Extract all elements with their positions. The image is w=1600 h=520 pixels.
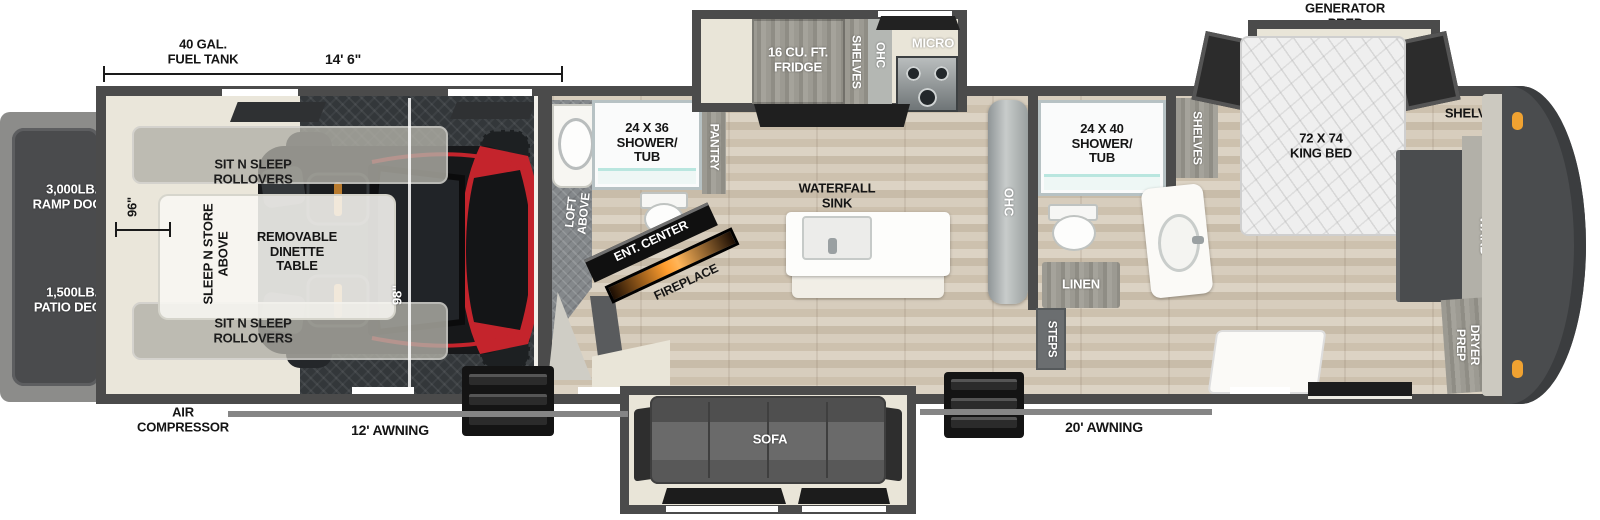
ramp-door-panel (12, 128, 100, 386)
marker-light-top (1512, 112, 1523, 130)
island-sink (802, 216, 872, 260)
garage-bath-wall (538, 96, 552, 394)
garage-entry-steps (462, 366, 554, 436)
rollovers-top-label: SIT N SLEEP ROLLOVERS (213, 157, 292, 186)
dimension-tick-left (103, 66, 105, 82)
dim-98-line (408, 98, 411, 392)
awning-20-bar (920, 409, 1212, 415)
pantry-label: PANTRY (707, 124, 720, 171)
air-compressor-label: AIR COMPRESSOR (137, 405, 229, 434)
wardrobe-cabinet (1396, 150, 1466, 302)
step-tread (951, 398, 1017, 409)
step-tread (951, 379, 1017, 390)
slide-window (802, 506, 886, 512)
island-faucet (828, 238, 837, 254)
dim-96-tick-right (169, 222, 171, 237)
awning-12-bar (228, 411, 628, 417)
marker-light-bottom (1512, 360, 1523, 378)
rv-floorplan: 40 GAL. FUEL TANK 14' 6" GENERATOR PREP … (0, 0, 1600, 520)
dim-98-label: 98" (391, 285, 406, 305)
rearbath-wall-right (1166, 96, 1176, 196)
kitchen-shelves-label: SHELVES (849, 35, 862, 89)
sleep-n-store-label: SLEEP N STORE ABOVE (201, 204, 230, 305)
rearbath-toilet-bowl (1052, 215, 1096, 251)
dim-96-label: 96" (126, 197, 141, 217)
garage-dimension-line (103, 73, 563, 75)
step-tread (469, 394, 547, 405)
slide-window (666, 506, 778, 512)
ohc-island-label: OHC (1001, 188, 1016, 216)
fuel-tank-label: 40 GAL. FUEL TANK (168, 37, 239, 66)
shower-rear-label: 24 X 40 SHOWER/ TUB (1072, 122, 1133, 166)
midbath-sink (558, 118, 594, 170)
loft-above-label: LOFT ABOVE (562, 191, 593, 235)
linen-label: LINEN (1062, 278, 1100, 293)
burner (918, 88, 937, 107)
awning-20-label: 20' AWNING (1065, 420, 1143, 436)
ramp-door (0, 112, 108, 402)
slide-floor-mat (662, 488, 786, 504)
main-entry-steps (944, 372, 1024, 438)
stove (896, 56, 958, 112)
dim-96-tick-left (115, 222, 117, 237)
fridge-label: 16 CU. FT. FRIDGE (768, 45, 828, 74)
awning-12-label: 12' AWNING (351, 423, 429, 439)
burner (906, 66, 921, 81)
rollovers-bottom-label: SIT N SLEEP ROLLOVERS (213, 316, 292, 345)
shower-glass (598, 168, 696, 184)
vanity-faucet (1192, 236, 1204, 244)
waterfall-sink-label: WATERFALL SINK (799, 181, 876, 210)
dim-96-line (115, 229, 171, 231)
shower-glass (1044, 174, 1160, 190)
step-tread (469, 374, 547, 385)
dimension-tick-right (561, 66, 563, 82)
dinette-label: REMOVABLE DINETTE TABLE (257, 230, 337, 274)
micro-label: MICRO (912, 37, 954, 52)
step-tread (951, 417, 1017, 428)
sofa-seam (826, 402, 828, 478)
garage-length-label: 14' 6" (325, 52, 361, 68)
king-bed-label: 72 X 74 KING BED (1290, 131, 1352, 160)
kitchen-lower-cabinets (754, 104, 910, 127)
slide-floor-mat (798, 488, 890, 504)
wall-window (448, 89, 532, 96)
kitchen-ohc-label: OHC (873, 42, 886, 68)
sofa-label: SOFA (753, 433, 788, 448)
wall-window (1230, 387, 1290, 394)
range-hood (876, 16, 960, 30)
wall-window (352, 387, 414, 394)
bedroom-window (1308, 382, 1412, 399)
shower-mid-label: 24 X 36 SHOWER/ TUB (617, 121, 678, 165)
burner (934, 66, 949, 81)
wall-window (222, 89, 298, 96)
rearbath-wall-left (1028, 96, 1038, 310)
sofa-seam (708, 402, 710, 478)
steps-label: STEPS (1045, 321, 1058, 358)
front-cap (1502, 86, 1586, 404)
